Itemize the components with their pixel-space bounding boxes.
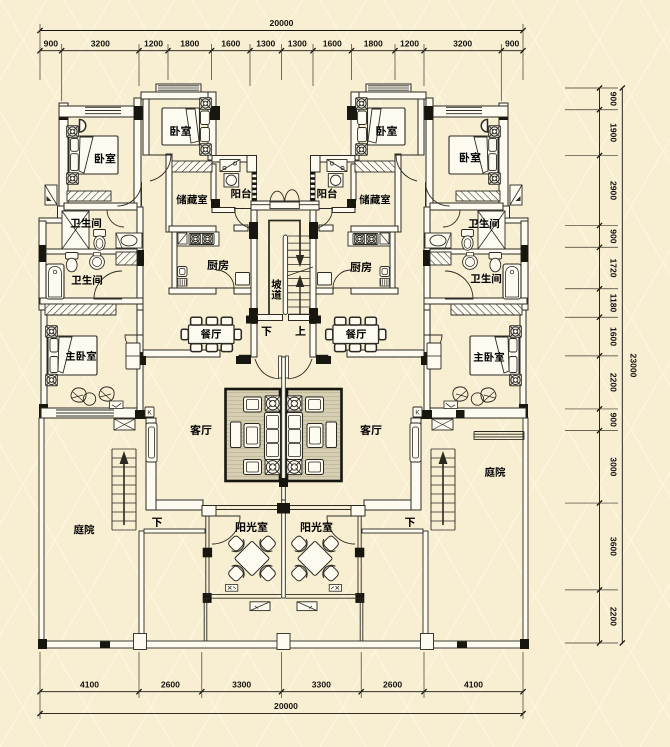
svg-text:K: K (415, 410, 420, 417)
svg-text:4100: 4100 (80, 679, 99, 689)
svg-text:900: 900 (609, 92, 619, 107)
svg-text:1200: 1200 (400, 38, 419, 48)
svg-text:900: 900 (505, 38, 520, 48)
svg-text:K: K (147, 410, 152, 417)
svg-text:1300: 1300 (288, 38, 307, 48)
svg-text:3600: 3600 (609, 537, 619, 556)
svg-text:1600: 1600 (609, 327, 619, 346)
svg-text:20000: 20000 (274, 701, 298, 711)
svg-text:1300: 1300 (256, 38, 275, 48)
svg-text:3200: 3200 (91, 38, 110, 48)
svg-text:3300: 3300 (232, 679, 251, 689)
svg-text:1200: 1200 (144, 38, 163, 48)
svg-text:900: 900 (609, 413, 619, 428)
svg-text:900: 900 (44, 38, 59, 48)
svg-text:2900: 2900 (609, 181, 619, 200)
svg-text:1800: 1800 (364, 38, 383, 48)
svg-text:2200: 2200 (609, 373, 619, 392)
svg-text:2600: 2600 (161, 679, 180, 689)
svg-text:3000: 3000 (609, 457, 619, 476)
svg-text:3200: 3200 (453, 38, 472, 48)
svg-text:1600: 1600 (323, 38, 342, 48)
svg-text:23000: 23000 (629, 354, 639, 378)
svg-text:1720: 1720 (609, 258, 619, 277)
svg-text:3300: 3300 (312, 679, 331, 689)
svg-text:1180: 1180 (609, 294, 619, 313)
svg-text:1600: 1600 (221, 38, 240, 48)
svg-text:1900: 1900 (609, 123, 619, 142)
svg-text:4100: 4100 (464, 679, 483, 689)
svg-text:20000: 20000 (270, 18, 294, 28)
svg-text:2200: 2200 (609, 607, 619, 626)
svg-text:1800: 1800 (180, 38, 199, 48)
svg-text:900: 900 (609, 229, 619, 244)
svg-text:2600: 2600 (383, 679, 402, 689)
